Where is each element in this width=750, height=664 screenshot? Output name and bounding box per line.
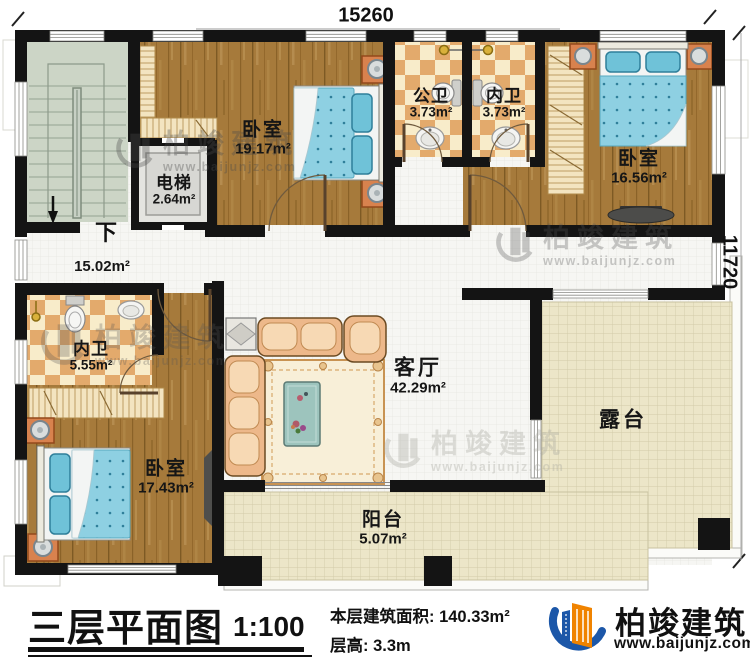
title-underline-thick [28, 647, 304, 652]
dimension-height: 11720 [718, 235, 741, 290]
label-terrace: 露台 [599, 410, 647, 433]
label-bedroom-3: 卧室 17.43m² [138, 460, 194, 497]
sofa-set [225, 316, 386, 484]
stairs-down-label: 下 [95, 215, 117, 247]
title-underline-thin [28, 655, 312, 657]
floor-plan-page: 柏竣建筑www.baijunjz.com 柏竣建筑www.baijunjz.co… [0, 0, 750, 664]
brand-website: www.baijunjz.com [614, 635, 750, 653]
floor-height-text: 层高: 3.3m [330, 632, 411, 656]
dimension-width: 15260 [338, 5, 394, 28]
brand-logo-icon [538, 596, 608, 664]
label-living-room: 客厅 42.29m² [390, 358, 446, 397]
label-balcony: 阳台 5.07m² [359, 511, 407, 548]
label-bedroom-1: 卧室 19.17m² [235, 121, 291, 158]
plan-title: 三层平面图 [28, 597, 223, 652]
floor-plan-drawing [0, 0, 750, 664]
label-public-bathroom: 公卫 3.73m² [410, 88, 453, 121]
label-hallway: 15.02m² [74, 259, 130, 275]
label-bedroom-2: 卧室 16.56m² [611, 150, 667, 187]
label-ensuite-bathroom-top: 内卫 3.73m² [483, 88, 526, 121]
label-ensuite-bathroom-left: 内卫 5.55m² [70, 341, 113, 374]
label-elevator: 电梯 2.64m² [153, 175, 196, 208]
floor-area-text: 本层建筑面积: 140.33m² [330, 603, 510, 627]
plan-scale: 1:100 [233, 611, 305, 643]
